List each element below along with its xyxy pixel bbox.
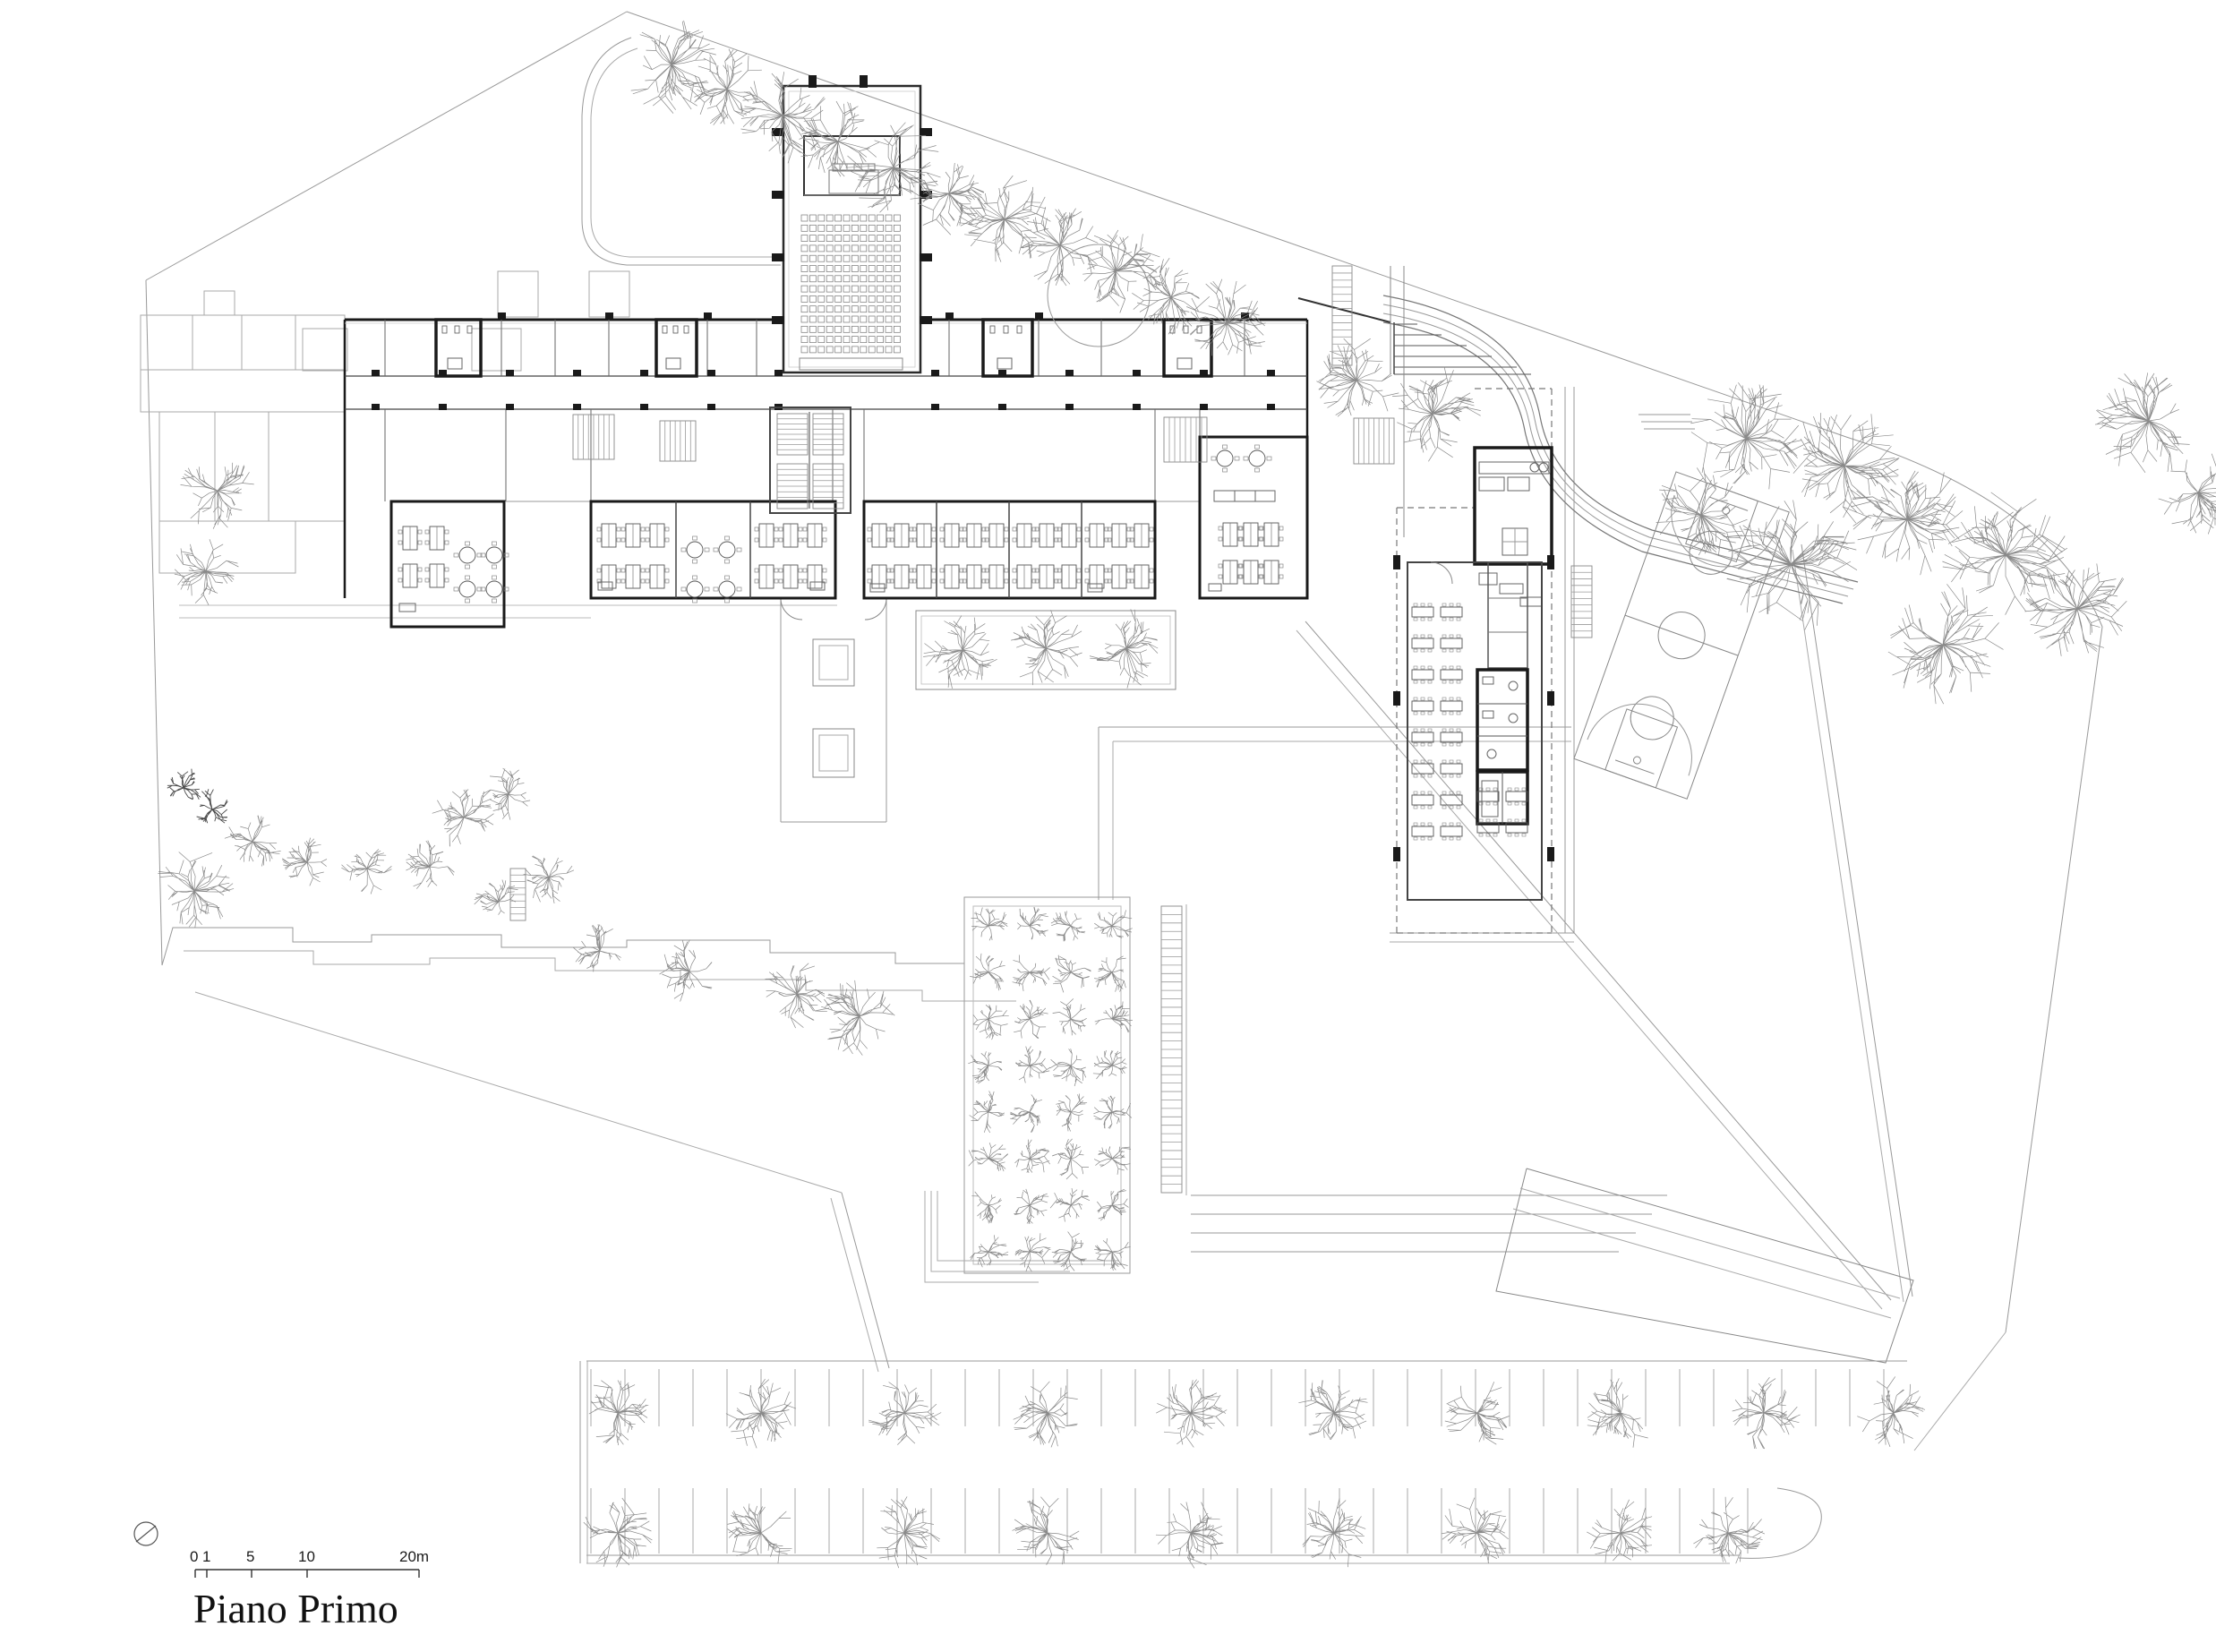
chair — [1428, 666, 1432, 669]
chair — [1260, 575, 1263, 578]
chair — [693, 599, 697, 603]
chair — [1239, 575, 1243, 578]
rtable-grid — [454, 542, 509, 603]
chair — [1450, 698, 1453, 700]
chair — [985, 569, 988, 572]
column-tick — [931, 370, 939, 376]
chair — [1457, 649, 1460, 652]
seat — [851, 347, 858, 353]
wc-block — [1164, 320, 1211, 376]
chair — [737, 587, 741, 591]
circle — [1487, 749, 1496, 758]
chair — [1522, 788, 1526, 791]
seat — [809, 276, 816, 282]
seat — [877, 245, 884, 252]
chair — [1486, 819, 1490, 822]
chair — [779, 579, 783, 583]
chair — [1057, 579, 1061, 583]
line — [1520, 1188, 1900, 1298]
chair — [1150, 579, 1153, 583]
seat — [877, 316, 884, 322]
dgrp-grid — [940, 524, 1008, 588]
chair — [1259, 575, 1262, 578]
seat — [835, 347, 842, 353]
chair — [1035, 579, 1039, 583]
seat — [860, 276, 867, 282]
chair — [1032, 527, 1036, 531]
seat — [843, 316, 850, 322]
dining-table — [1441, 732, 1462, 742]
chair — [803, 538, 807, 542]
chair — [1219, 564, 1222, 568]
chair — [1255, 468, 1260, 472]
seat — [851, 245, 858, 252]
fix-grid — [1170, 326, 1202, 333]
chair — [1057, 538, 1061, 542]
tree — [1011, 610, 1082, 685]
line — [1792, 550, 1904, 1302]
chair — [1235, 457, 1239, 460]
chair — [1428, 775, 1432, 777]
dining-table — [1441, 826, 1462, 836]
tree — [1587, 1500, 1652, 1562]
chair — [617, 538, 620, 542]
chair — [1223, 445, 1228, 449]
chair — [1150, 538, 1153, 542]
tree — [2095, 372, 2190, 473]
chair — [1457, 698, 1460, 700]
chair — [641, 569, 645, 572]
tree — [1056, 1094, 1087, 1132]
chair — [1414, 775, 1417, 777]
chair — [1428, 806, 1432, 809]
line — [1298, 298, 1390, 322]
column-tick — [1035, 312, 1043, 320]
chair — [1239, 537, 1243, 541]
chair — [418, 568, 422, 571]
seat — [843, 235, 850, 242]
chair — [705, 548, 709, 552]
seat — [835, 215, 842, 221]
seat — [843, 295, 850, 302]
seat — [843, 245, 850, 252]
tree — [1784, 413, 1899, 523]
path — [1383, 313, 1848, 596]
seat — [835, 266, 842, 272]
chair — [1421, 635, 1425, 638]
seat — [851, 326, 858, 332]
seat — [809, 316, 816, 322]
seat — [860, 245, 867, 252]
seat — [860, 266, 867, 272]
wc-fixture — [467, 326, 472, 333]
seat — [835, 225, 842, 231]
line — [195, 992, 842, 1193]
chair — [1130, 579, 1134, 583]
dgrp-grid — [398, 526, 449, 587]
chair — [963, 579, 966, 583]
chair — [1260, 564, 1263, 568]
line — [1615, 760, 1654, 774]
8 — [510, 869, 526, 920]
rect — [819, 735, 848, 771]
seat — [894, 326, 900, 332]
tree — [800, 101, 879, 176]
chair — [466, 599, 470, 603]
chair — [1130, 538, 1134, 542]
polyline — [925, 1191, 1039, 1282]
seat — [886, 245, 892, 252]
column-tick — [1200, 404, 1208, 410]
chair — [1005, 538, 1008, 542]
chair — [1428, 792, 1432, 794]
rect — [1483, 711, 1493, 718]
seat — [851, 316, 858, 322]
seat — [818, 326, 825, 332]
chair — [1077, 579, 1081, 583]
seat — [894, 225, 900, 231]
column-tick — [1547, 555, 1554, 569]
dgrp-grid — [597, 524, 669, 588]
seat — [843, 326, 850, 332]
chair — [1442, 806, 1446, 809]
chair — [799, 538, 802, 542]
chair — [1428, 635, 1432, 638]
chair — [1442, 743, 1446, 746]
chair — [1414, 743, 1417, 746]
chair — [1421, 837, 1425, 840]
chair — [1035, 538, 1039, 542]
tree — [1094, 910, 1133, 937]
column-tick — [372, 404, 380, 410]
seat — [835, 276, 842, 282]
rect — [1488, 562, 1527, 668]
chair — [646, 579, 649, 583]
rect — [204, 291, 235, 315]
chair — [492, 565, 497, 569]
chair — [445, 578, 449, 582]
chair — [912, 569, 916, 572]
tree — [1094, 1238, 1131, 1271]
chair — [1421, 806, 1425, 809]
chair — [823, 569, 826, 572]
chair — [910, 538, 913, 542]
chair — [1105, 527, 1108, 531]
tree — [969, 1143, 1008, 1171]
dining-table — [1412, 732, 1433, 742]
chair — [755, 569, 758, 572]
chair — [398, 541, 402, 544]
chair — [1457, 712, 1460, 715]
tree — [1052, 1232, 1087, 1271]
seat — [868, 306, 875, 312]
chair — [597, 538, 601, 542]
tree — [1316, 338, 1399, 416]
chair — [932, 538, 936, 542]
chair — [1486, 788, 1490, 791]
walkways — [582, 38, 1913, 1363]
seat — [886, 266, 892, 272]
rect — [829, 170, 878, 193]
chair — [1522, 802, 1526, 805]
chair — [960, 527, 963, 531]
chair — [1457, 666, 1460, 669]
chair — [1450, 635, 1453, 638]
chair — [803, 527, 807, 531]
tree — [175, 539, 239, 605]
chair — [1508, 788, 1511, 791]
courtyard-terraces — [925, 387, 1667, 1282]
north-arrow-needle — [136, 1526, 156, 1542]
column-tick — [1133, 370, 1141, 376]
seat — [868, 337, 875, 343]
rect — [800, 358, 903, 370]
chair — [1259, 564, 1262, 568]
seat — [801, 255, 808, 261]
seat — [801, 316, 808, 322]
wc-fixture — [1184, 326, 1188, 333]
chair — [1150, 569, 1153, 572]
chair — [1085, 538, 1089, 542]
tree — [1095, 1002, 1133, 1033]
canteen — [1298, 266, 1695, 933]
round-table — [459, 547, 475, 563]
chair — [1013, 538, 1016, 542]
line — [1513, 1209, 1891, 1318]
dining-table — [1412, 764, 1433, 774]
scale-label-20m: 20m — [399, 1548, 429, 1565]
line — [842, 1193, 889, 1368]
seat — [818, 306, 825, 312]
column-tick — [573, 404, 581, 410]
chair — [1108, 538, 1111, 542]
chair — [963, 569, 966, 572]
column-tick — [640, 370, 648, 376]
tree — [959, 175, 1050, 262]
dtable-grid — [1412, 603, 1462, 840]
orchard-grid — [968, 907, 1133, 1271]
seat — [818, 295, 825, 302]
wc-fixture — [990, 326, 995, 333]
seat — [860, 235, 867, 242]
chair — [1515, 834, 1519, 836]
chair — [1260, 537, 1263, 541]
chair — [1219, 537, 1222, 541]
column-tick — [1393, 847, 1400, 861]
chair — [1085, 527, 1089, 531]
chair — [1127, 538, 1131, 542]
seat — [809, 225, 816, 231]
chair — [1055, 579, 1058, 583]
seat — [801, 326, 808, 332]
chair — [868, 569, 871, 572]
round-table — [459, 581, 475, 597]
seat — [801, 266, 808, 272]
tree — [1888, 584, 2004, 704]
column-tick — [772, 191, 784, 199]
circle — [1539, 463, 1548, 472]
chair — [755, 579, 758, 583]
chair — [1442, 837, 1446, 840]
chair — [621, 538, 625, 542]
dining-table — [1441, 795, 1462, 805]
dining-table — [1412, 795, 1433, 805]
tree — [1392, 367, 1481, 462]
rect — [1177, 358, 1192, 369]
seat — [826, 255, 833, 261]
seat — [894, 266, 900, 272]
chair — [466, 565, 470, 569]
chair — [932, 569, 936, 572]
chair — [466, 576, 470, 579]
chair — [1414, 837, 1417, 840]
rect — [1214, 491, 1275, 501]
chair — [1442, 792, 1446, 794]
wc-block — [436, 320, 481, 376]
chair — [1421, 666, 1425, 669]
chair — [1414, 823, 1417, 826]
dining-table — [1412, 670, 1433, 680]
chair — [803, 579, 807, 583]
dining-table — [1441, 670, 1462, 680]
chair — [910, 579, 913, 583]
dgrp-grid — [868, 524, 936, 588]
seat — [886, 326, 892, 332]
line — [1625, 615, 1738, 655]
chair — [755, 538, 758, 542]
chair — [1442, 618, 1446, 621]
chair — [1414, 698, 1417, 700]
seat — [809, 245, 816, 252]
seat — [835, 286, 842, 292]
seat — [894, 235, 900, 242]
polyline — [931, 1191, 1070, 1271]
seat — [835, 306, 842, 312]
column-tick — [920, 128, 932, 136]
dining-table — [1412, 607, 1433, 617]
seat-grid — [801, 215, 900, 353]
chair — [1450, 712, 1453, 715]
chair — [779, 538, 783, 542]
chair — [1442, 603, 1446, 606]
chair — [714, 587, 718, 591]
fix-grid — [990, 326, 1022, 333]
chair — [646, 527, 649, 531]
chair — [1493, 788, 1497, 791]
chair — [454, 587, 458, 591]
chair — [1150, 527, 1153, 531]
tree — [923, 615, 997, 689]
chair — [960, 569, 963, 572]
column-tick — [707, 404, 715, 410]
path — [1739, 1488, 1821, 1558]
column-tick — [860, 75, 868, 88]
basketball-court — [1574, 472, 1789, 799]
chair — [890, 579, 894, 583]
chair — [1442, 666, 1446, 669]
chair — [963, 527, 966, 531]
dining-table — [1477, 792, 1499, 801]
tree — [1693, 1497, 1765, 1563]
chair — [1457, 760, 1460, 763]
seat — [843, 337, 850, 343]
chair — [1450, 823, 1453, 826]
door-arc — [1431, 562, 1452, 584]
chair — [737, 548, 741, 552]
seat — [886, 316, 892, 322]
wc-fixture — [442, 326, 447, 333]
column-tick — [1393, 555, 1400, 569]
tree — [1156, 1502, 1223, 1569]
seat — [868, 316, 875, 322]
chair — [1457, 743, 1460, 746]
scale-label-1: 1 — [202, 1548, 210, 1565]
8 — [813, 414, 843, 455]
seat — [886, 225, 892, 231]
seat — [843, 276, 850, 282]
chair — [1493, 834, 1497, 836]
chair — [887, 569, 891, 572]
column-tick — [372, 370, 380, 376]
seat — [843, 255, 850, 261]
seat — [860, 295, 867, 302]
wc-fixture — [663, 326, 667, 333]
chair — [890, 527, 894, 531]
seat — [809, 286, 816, 292]
circle — [1509, 681, 1518, 690]
chair — [779, 569, 783, 572]
site-boundary — [146, 12, 2102, 1451]
column-tick — [772, 316, 784, 324]
chair — [1457, 837, 1460, 840]
chair — [1428, 603, 1432, 606]
chair — [665, 527, 669, 531]
seat — [809, 266, 816, 272]
tree — [1445, 1382, 1510, 1444]
seat — [801, 215, 808, 221]
chair — [1450, 729, 1453, 732]
tree — [1050, 1188, 1090, 1221]
chair — [1259, 526, 1262, 530]
rect — [141, 315, 345, 412]
seat — [886, 347, 892, 353]
seat — [877, 215, 884, 221]
chair — [681, 548, 686, 552]
chair — [1085, 569, 1089, 572]
tree — [1014, 1000, 1048, 1039]
polyline — [1496, 1168, 1913, 1363]
chair — [1450, 837, 1453, 840]
tree — [727, 1503, 791, 1563]
round-table — [719, 581, 735, 597]
circle — [1509, 714, 1518, 723]
chair — [1035, 527, 1039, 531]
chair — [1442, 729, 1446, 732]
chair — [641, 527, 645, 531]
seat — [843, 225, 850, 231]
chair — [646, 538, 649, 542]
tree — [971, 1192, 1001, 1223]
tree — [970, 1091, 1005, 1133]
chair — [1421, 603, 1425, 606]
seat — [818, 225, 825, 231]
34 — [1161, 906, 1182, 1193]
tree — [282, 838, 327, 886]
circle — [1632, 756, 1641, 765]
chair — [492, 542, 497, 545]
seat — [886, 255, 892, 261]
seat — [851, 337, 858, 343]
